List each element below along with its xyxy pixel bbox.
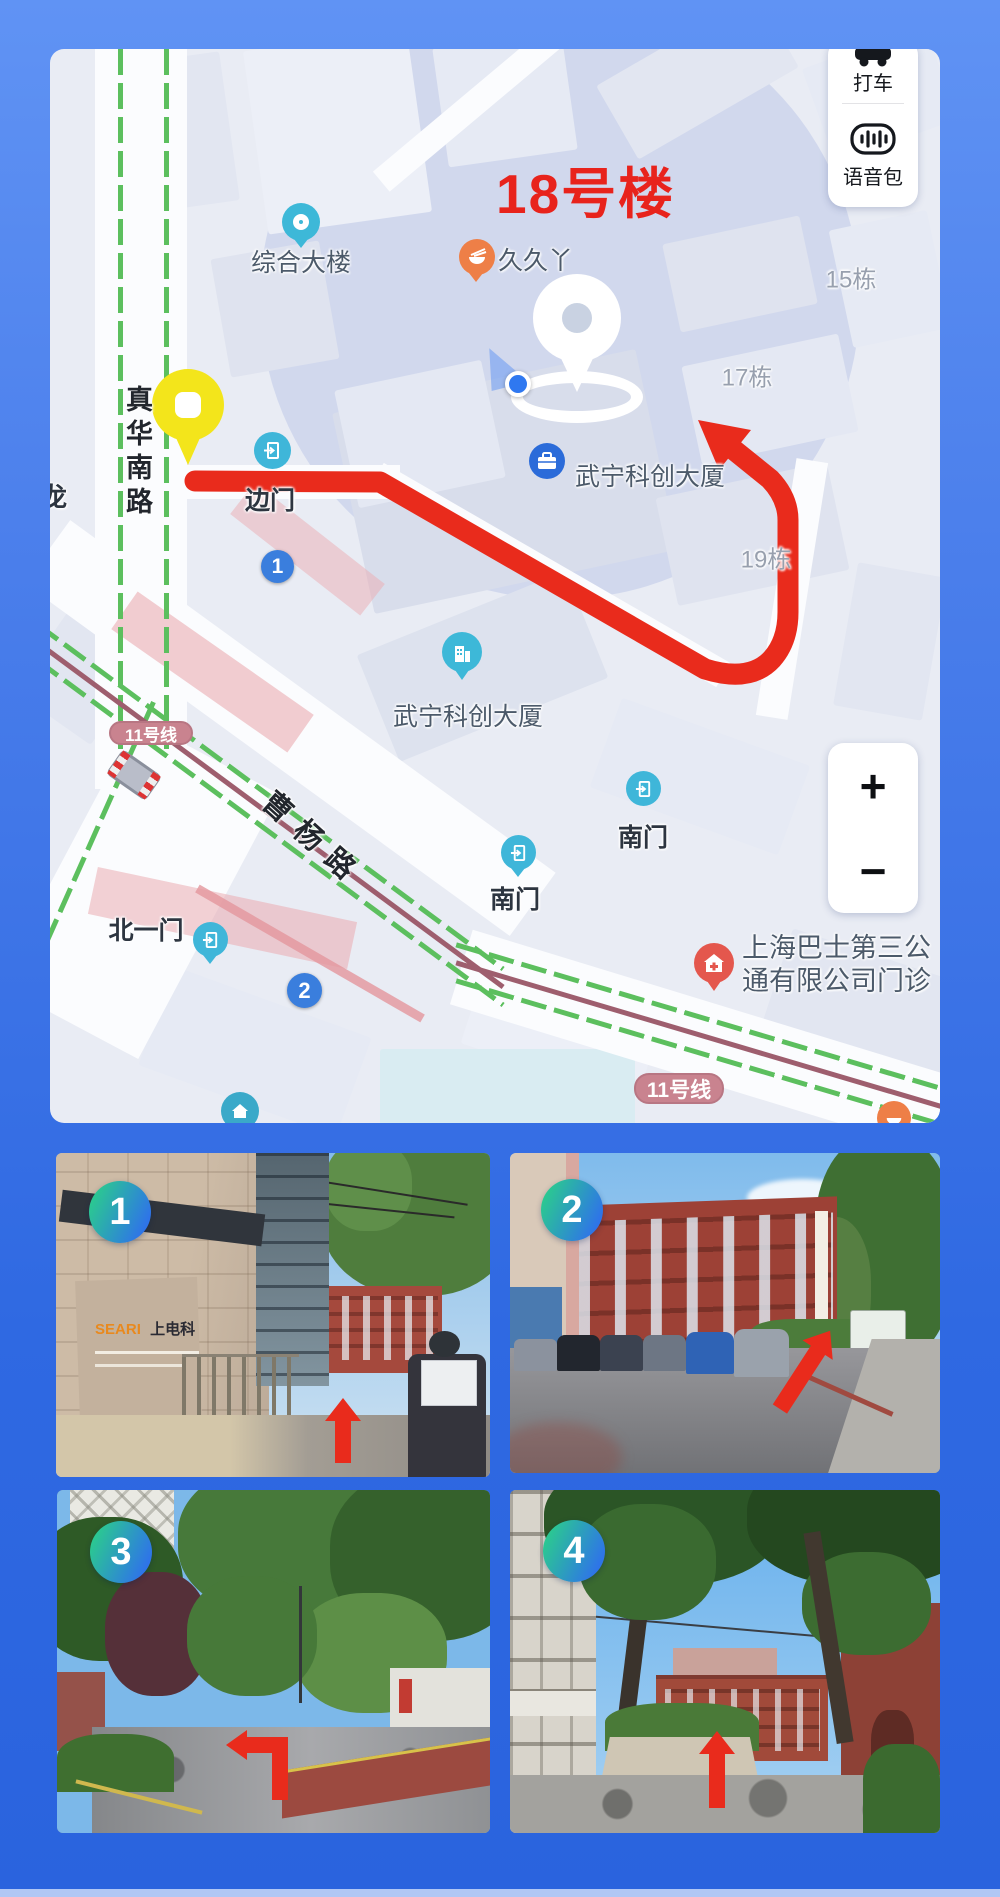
photo-sign-line	[95, 1364, 182, 1367]
gate-icon	[635, 780, 653, 798]
screenshot-root: 1 2 11号线 11号线 综合大楼 久久丫 15栋 17栋 19栋 武宁科创大…	[0, 0, 1000, 1897]
route-step-badge-3: 3	[90, 1521, 152, 1583]
route-step-badge-1: 1	[89, 1181, 151, 1243]
poi-label-17dong: 17栋	[722, 358, 773, 393]
building-pin-tail	[455, 670, 469, 680]
food-pin[interactable]	[459, 239, 495, 275]
bottom-edge-strip	[0, 1889, 1000, 1897]
poi-label-bianmen: 边门	[245, 481, 295, 517]
map-canvas[interactable]: 1 2 11号线 11号线 综合大楼 久久丫 15栋 17栋 19栋 武宁科创大…	[50, 49, 940, 1123]
building-pin[interactable]	[442, 632, 482, 672]
map-side-panel: 打车 语音包	[828, 49, 918, 207]
zoom-in-button[interactable]: +	[828, 743, 918, 828]
gate-pin-tail	[511, 868, 525, 877]
gate-icon	[510, 844, 528, 862]
poi-label-nanmen-1: 南门	[490, 880, 540, 916]
photo-car	[514, 1339, 557, 1371]
gate-pin-tail	[203, 955, 217, 964]
briefcase-icon	[537, 452, 557, 470]
poi-label-15dong: 15栋	[826, 260, 877, 295]
origin-pin[interactable]	[152, 369, 226, 474]
route-photo-1: SEARI 上电科 1	[56, 1153, 490, 1477]
ring-pin[interactable]	[282, 203, 320, 241]
destination-annotation: 18号楼	[496, 149, 675, 229]
taxi-car-icon	[851, 49, 895, 67]
photo-helmet	[429, 1331, 459, 1357]
route-step-badge-4: 4	[543, 1520, 605, 1582]
poi-label-beiyimen: 北一门	[108, 911, 183, 947]
exit-marker-2[interactable]: 2	[287, 973, 322, 1008]
poi-label-jiujiuya: 久久丫	[498, 241, 573, 277]
photo-pole	[299, 1586, 302, 1703]
zoom-out-button[interactable]: −	[828, 828, 918, 913]
photo-car	[686, 1332, 733, 1374]
poi-label-nanmen-2: 南门	[618, 818, 668, 854]
bowl-icon	[466, 246, 488, 268]
route-photo-2: 2	[510, 1153, 940, 1473]
metro-line-badge: 11号线	[109, 721, 193, 745]
destination-pin[interactable]	[533, 274, 621, 402]
hospital-pin-tail	[707, 981, 721, 991]
building-icon	[452, 642, 472, 662]
hospital-pin[interactable]	[694, 943, 734, 983]
voice-pack-button[interactable]: 语音包	[828, 161, 918, 190]
road-label-zhenhuananlu: 真华南路	[118, 385, 157, 521]
photo-sign: SEARI 上电科	[95, 1318, 195, 1339]
red-arrow-up	[325, 1398, 361, 1464]
panel-divider	[842, 103, 904, 104]
zoom-control: + −	[828, 743, 918, 913]
red-arrow-turn-left	[226, 1728, 288, 1802]
house-pin[interactable]	[221, 1092, 259, 1123]
gate-pin-bianmen[interactable]	[254, 432, 291, 469]
red-arrow-up	[699, 1731, 735, 1809]
gate-icon	[202, 931, 220, 949]
photo-bushes-right	[863, 1744, 940, 1833]
route-photo-4: 4	[510, 1490, 940, 1833]
photo-poster	[399, 1679, 412, 1713]
photo-red-building-windows	[321, 1296, 438, 1361]
poi-label-long: 龙	[50, 477, 67, 514]
gate-pin-nanmen-2[interactable]	[626, 771, 661, 806]
poi-label-19dong: 19栋	[741, 540, 792, 575]
poi-label-wuning-2: 武宁科创大厦	[393, 697, 543, 733]
hospital-label-line2: 通有限公司门诊	[742, 959, 931, 998]
house-icon	[231, 1103, 249, 1119]
photo-canopy	[187, 1576, 317, 1696]
gate-pin-nanmen-1[interactable]	[501, 835, 536, 870]
current-location-dot	[505, 371, 531, 397]
route-photo-3: 3	[57, 1490, 490, 1833]
metro-line-badge: 11号线	[634, 1073, 724, 1104]
photo-car	[643, 1335, 686, 1370]
photo-bike-box	[421, 1360, 477, 1405]
photo-railing	[510, 1689, 596, 1716]
briefcase-pin[interactable]	[529, 443, 565, 479]
route-step-badge-2: 2	[541, 1179, 603, 1241]
bowl-icon	[884, 1108, 904, 1123]
poi-label-zonghedalou: 综合大楼	[251, 243, 351, 279]
taxi-button[interactable]: 打车	[828, 67, 918, 96]
voice-pack-icon	[850, 123, 896, 155]
photo-car	[557, 1335, 600, 1370]
gate-icon	[263, 441, 282, 460]
food-pin-tail	[469, 273, 483, 282]
photo-glass-lines	[256, 1153, 330, 1386]
poi-label-wuning-1: 武宁科创大厦	[575, 457, 725, 493]
gate-pin-beiyimen[interactable]	[193, 922, 228, 957]
sign-shangdianke: 上电科	[150, 1321, 195, 1338]
hospital-cross-icon	[703, 953, 725, 973]
photo-car	[600, 1335, 643, 1370]
exit-marker-1[interactable]: 1	[261, 550, 294, 583]
sign-seari: SEARI	[95, 1321, 141, 1338]
